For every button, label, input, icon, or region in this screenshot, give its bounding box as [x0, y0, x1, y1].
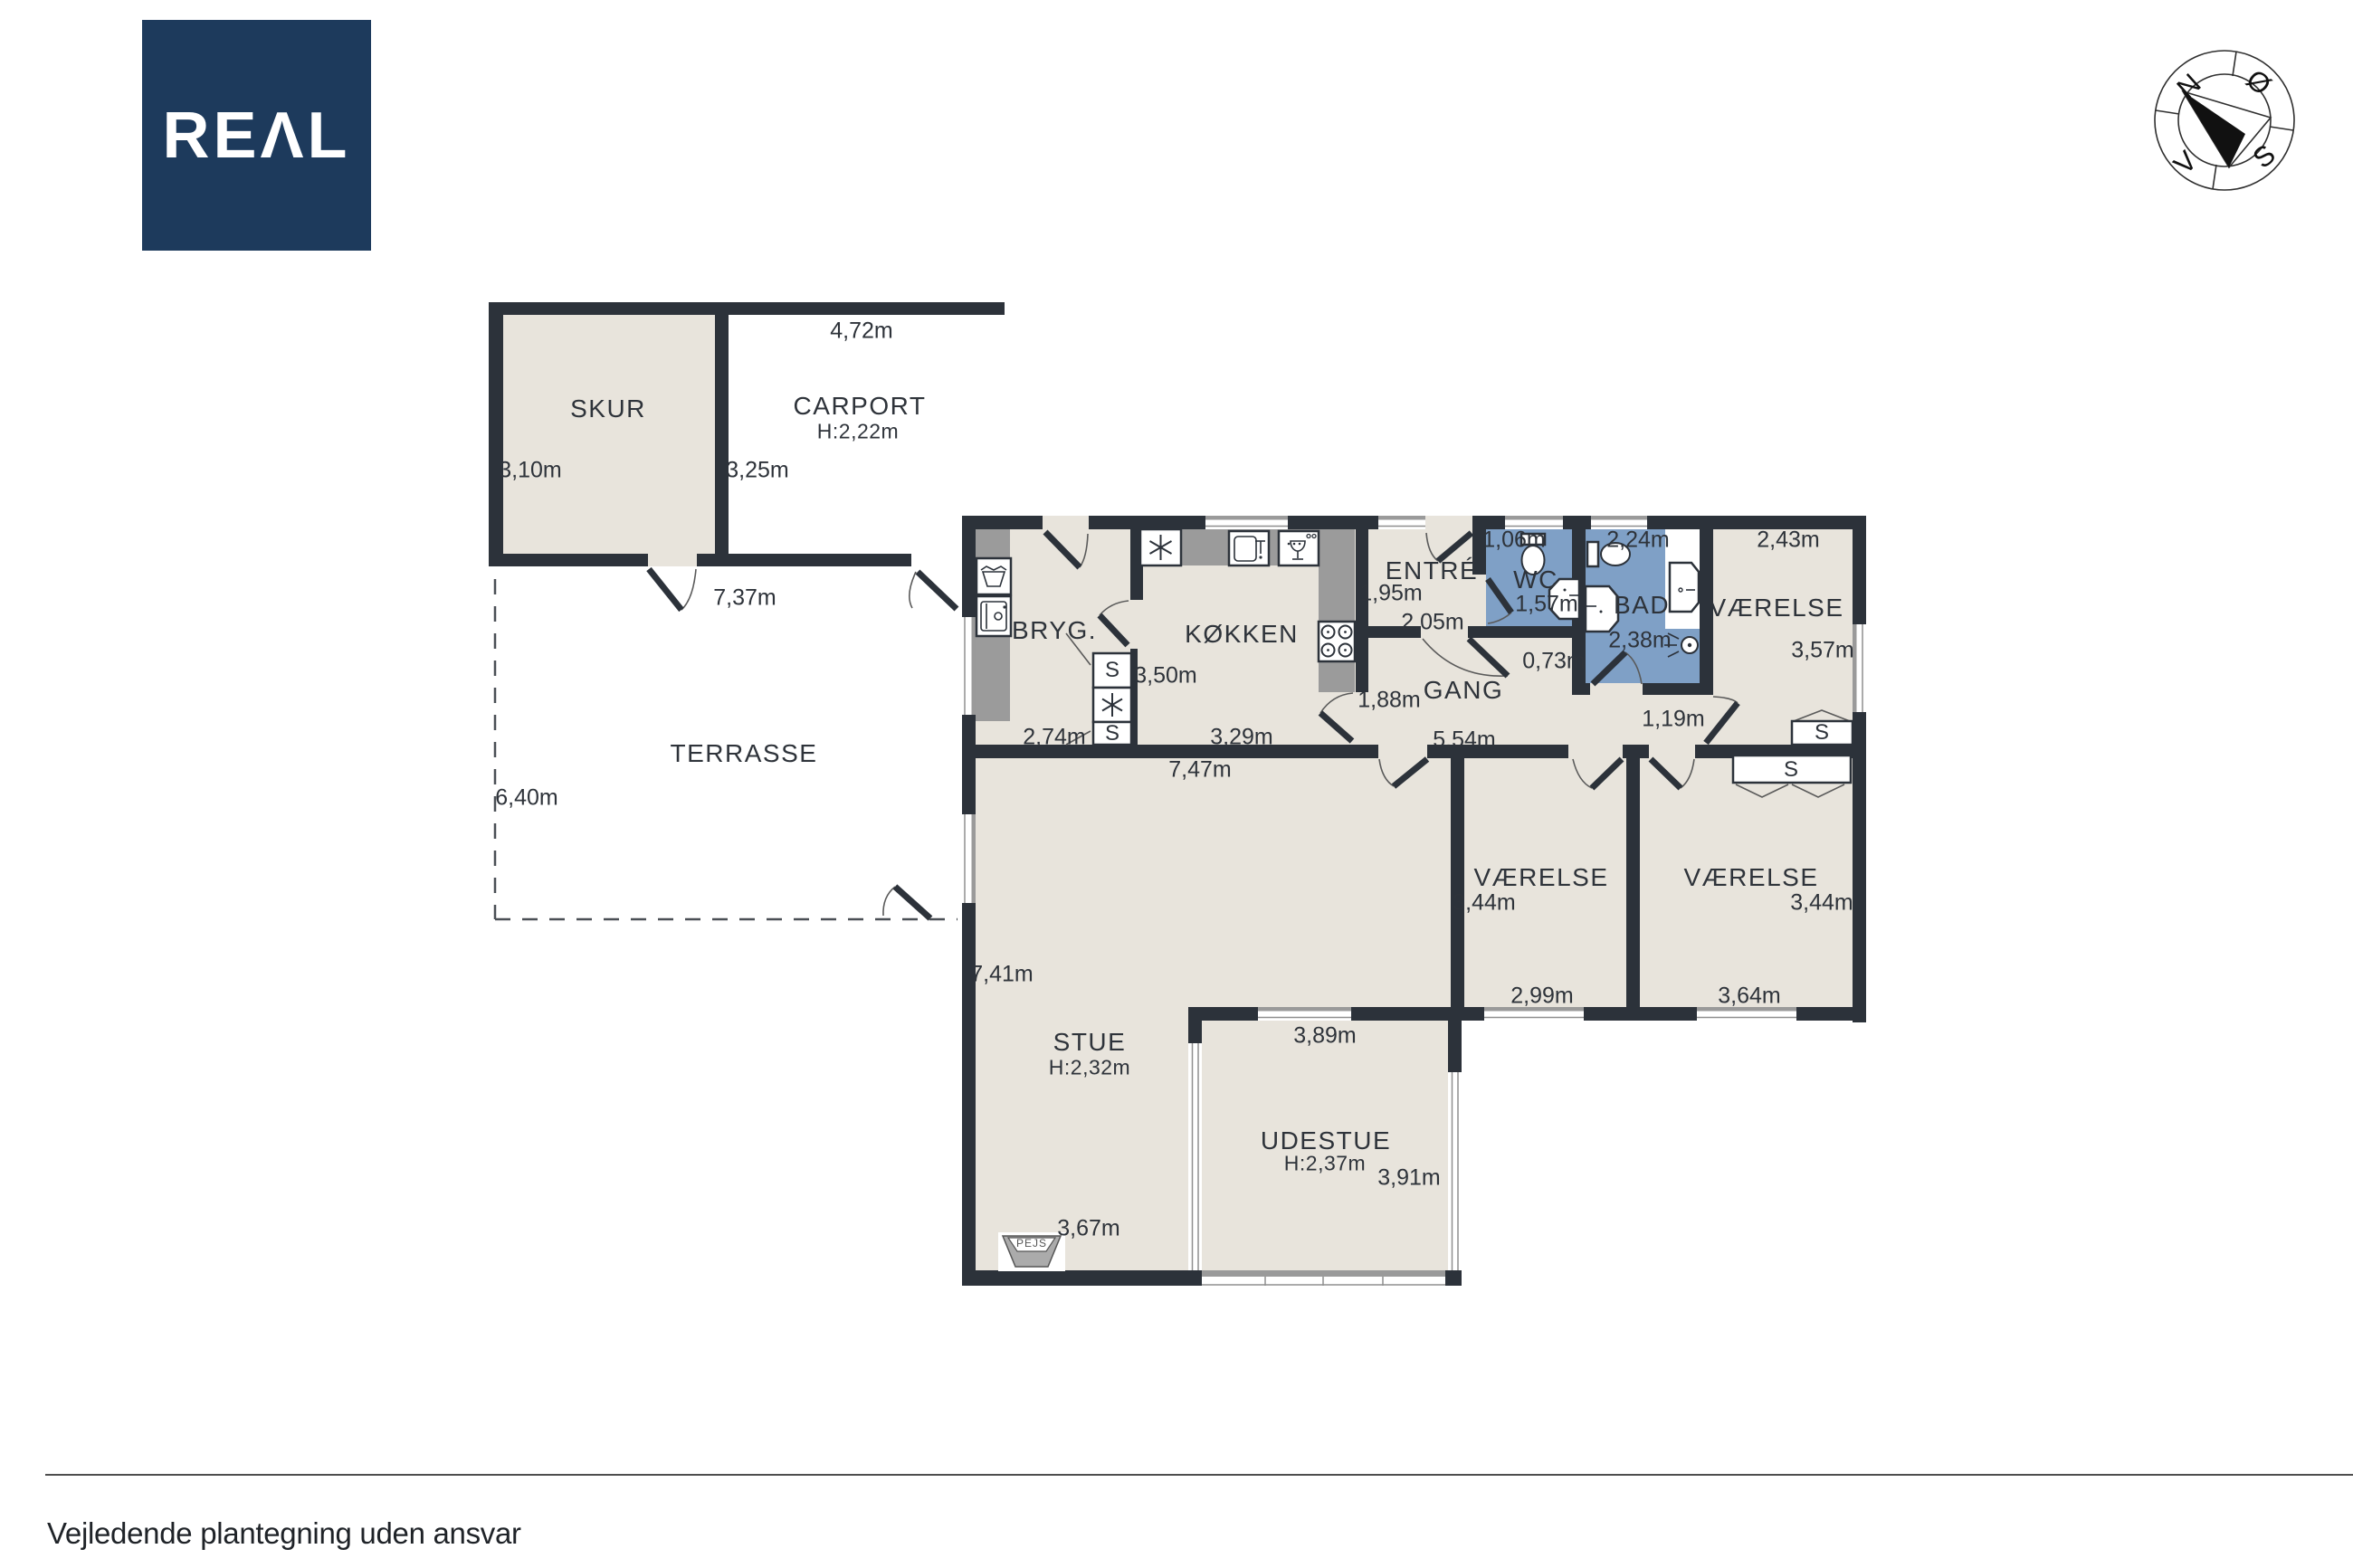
measurement-label-9: 2,43m	[1757, 527, 1819, 554]
measurement-label-8: 2,24m	[1606, 527, 1669, 554]
measurement-label-19: 1,19m	[1642, 707, 1704, 733]
measurement-label-10: 1,57m	[1515, 592, 1577, 618]
footer-divider	[45, 1474, 2353, 1476]
closet-label-0: S	[1105, 658, 1119, 683]
room-height-label-udestue: H:2,37m	[1284, 1152, 1366, 1176]
room-label-gang: GANG	[1424, 676, 1503, 705]
room-label-bryg: BRYG.	[1012, 616, 1097, 645]
measurement-label-15: 2,74m	[1023, 725, 1085, 751]
measurement-label-21: 7,41m	[970, 962, 1033, 988]
labels-layer: SKURCARPORTH:2,22mTERRASSEBRYG.KØKKENENT…	[0, 0, 2353, 1568]
room-label-skur: SKUR	[570, 394, 646, 423]
measurement-label-7: 1,06m	[1482, 527, 1545, 554]
measurement-label-23: 2,99m	[1510, 984, 1573, 1010]
room-label-terrasse: TERRASSE	[671, 739, 818, 768]
room-label-bad: BAD	[1614, 591, 1670, 620]
measurement-label-13: 3,57m	[1791, 638, 1853, 664]
measurement-label-18: 5,54m	[1433, 727, 1495, 754]
measurement-label-5: 1,95m	[1359, 581, 1422, 607]
room-label-wc: WC	[1513, 565, 1558, 594]
measurement-label-22: 3,44m	[1453, 890, 1515, 917]
measurement-label-12: 0,73m	[1522, 649, 1585, 675]
room-height-label-carport: H:2,22m	[817, 420, 899, 444]
room-label-vaerelse-s1: VÆRELSE	[1474, 863, 1609, 892]
room-label-carport: CARPORT	[794, 392, 927, 421]
room-label-kokken: KØKKEN	[1185, 620, 1299, 649]
measurement-label-3: 7,37m	[713, 585, 776, 612]
room-height-label-stue: H:2,32m	[1049, 1056, 1130, 1080]
measurement-label-28: 3,67m	[1057, 1216, 1119, 1242]
disclaimer-text: Vejledende plantegning uden ansvar	[47, 1516, 521, 1551]
measurement-label-27: 3,91m	[1377, 1165, 1440, 1192]
closet-label-3: S	[1784, 757, 1798, 783]
measurement-label-1: 3,10m	[499, 458, 561, 484]
measurement-label-24: 3,44m	[1790, 890, 1853, 917]
measurement-label-16: 3,29m	[1210, 725, 1272, 751]
room-label-stue: STUE	[1053, 1028, 1127, 1057]
measurement-label-17: 1,88m	[1357, 688, 1420, 714]
room-label-vaerelse-s2: VÆRELSE	[1684, 863, 1819, 892]
measurement-label-14: 3,50m	[1134, 663, 1196, 689]
fireplace-label: PEJS	[1016, 1237, 1047, 1250]
floorplan-page: REΛL	[0, 0, 2353, 1568]
measurement-label-25: 3,64m	[1718, 984, 1780, 1010]
measurement-label-11: 2,38m	[1608, 628, 1671, 654]
measurement-label-2: 3,25m	[726, 458, 788, 484]
measurement-label-6: 2,05m	[1401, 610, 1463, 636]
closet-label-2: S	[1815, 720, 1829, 746]
closet-label-1: S	[1105, 721, 1119, 746]
measurement-label-20: 7,47m	[1168, 757, 1231, 784]
measurement-label-26: 3,89m	[1293, 1023, 1356, 1050]
measurement-label-0: 4,72m	[830, 318, 892, 345]
measurement-label-4: 6,40m	[495, 785, 557, 812]
room-label-vaerelse-ne: VÆRELSE	[1710, 594, 1844, 622]
